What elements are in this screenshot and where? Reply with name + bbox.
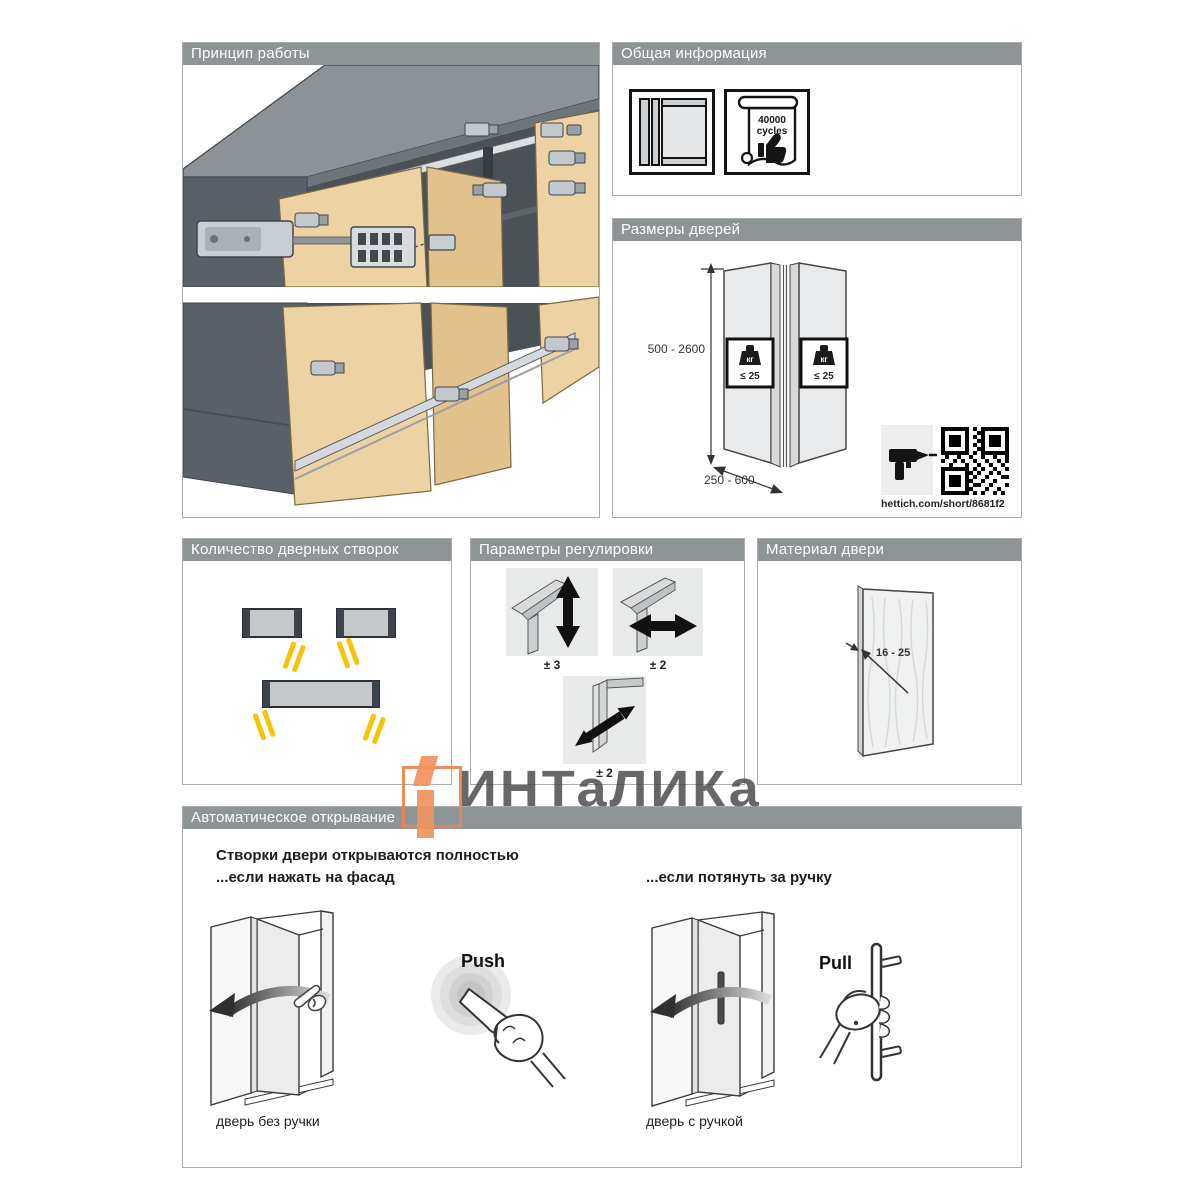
- weight-unit: кг: [820, 355, 828, 364]
- folding-door-icon: [629, 89, 715, 175]
- cabinet-mechanism-illustration: [183, 65, 599, 517]
- push-label: Push: [461, 951, 505, 972]
- panel-automatic-opening: Автоматическое открывание Створки двери …: [182, 806, 1022, 1168]
- horizontal-adjust-value: ± 2: [613, 658, 703, 672]
- panel-general-info: Общая информация 40000 cycles: [612, 42, 1022, 196]
- folding-door-cabinet: [650, 912, 774, 1106]
- weight-limit: ≤ 25: [814, 371, 834, 382]
- horizontal-adjustment-diagram: [613, 568, 703, 656]
- push-opening-illustration: [201, 895, 611, 1110]
- pull-opening-illustration: [638, 892, 1018, 1112]
- door-material-diagram: 16 - 25: [758, 561, 1021, 784]
- watermark-logo-bar-bottom: [417, 790, 434, 838]
- panel-working-principle: Принцип работы: [182, 42, 600, 518]
- door-dimensions-diagram: 500 - 2600 250 - 600 кг ≤ 25 кг: [613, 241, 1021, 517]
- thickness-label: 16 - 25: [876, 647, 910, 659]
- push-condition: ...если нажать на фасад: [216, 867, 395, 889]
- watermark-text: ИНТаЛИКа: [458, 760, 762, 819]
- height-range-label: 500 - 2600: [648, 342, 706, 356]
- drill-icon: [881, 425, 937, 495]
- short-link: hettich.com/short/8681f2: [881, 498, 1005, 510]
- leaf-count-diagram: [183, 561, 451, 784]
- panel-title: Параметры регулировки: [471, 539, 744, 561]
- panel-title: Размеры дверей: [613, 219, 1021, 241]
- cycles-value: 40000: [758, 115, 786, 126]
- panel-door-dimensions: Размеры дверей 500 - 2600 250: [612, 218, 1022, 518]
- diagonal-adjustment-diagram: [563, 676, 646, 764]
- door-handle: [718, 972, 724, 1024]
- weight-unit: кг: [746, 355, 754, 364]
- width-range-label: 250 - 600: [704, 473, 755, 487]
- pull-condition: ...если потянуть за ручку: [646, 867, 832, 889]
- panel-adjustment: Параметры регулировки: [470, 538, 745, 785]
- weight-badge: кг ≤ 25: [801, 339, 847, 387]
- product-datasheet: Принцип работы: [0, 0, 1200, 1200]
- panel-title: Принцип работы: [183, 43, 599, 65]
- vertical-adjust-value: ± 3: [506, 658, 598, 672]
- panel-leaf-count: Количество дверных створок: [182, 538, 452, 785]
- qr-code: [939, 425, 1009, 495]
- panel-door-material: Материал двери 16 - 25: [757, 538, 1022, 785]
- weight-badge: кг ≤ 25: [727, 339, 773, 387]
- panel-title: Материал двери: [758, 539, 1021, 561]
- opening-headline: Створки двери открываются полностью: [216, 845, 519, 867]
- height-dimension: [701, 263, 724, 465]
- panel-title: Общая информация: [613, 43, 1021, 65]
- panel-title: Количество дверных створок: [183, 539, 451, 561]
- caption-push: дверь без ручки: [216, 1113, 320, 1129]
- pointing-hand-icon: [460, 989, 565, 1087]
- caption-pull: дверь с ручкой: [646, 1113, 743, 1129]
- weight-limit: ≤ 25: [740, 371, 760, 382]
- cycles-certificate-icon: 40000 cycles: [724, 89, 810, 175]
- pull-label: Pull: [819, 953, 852, 974]
- vertical-adjustment-diagram: [506, 568, 598, 656]
- cycles-unit: cycles: [757, 126, 788, 137]
